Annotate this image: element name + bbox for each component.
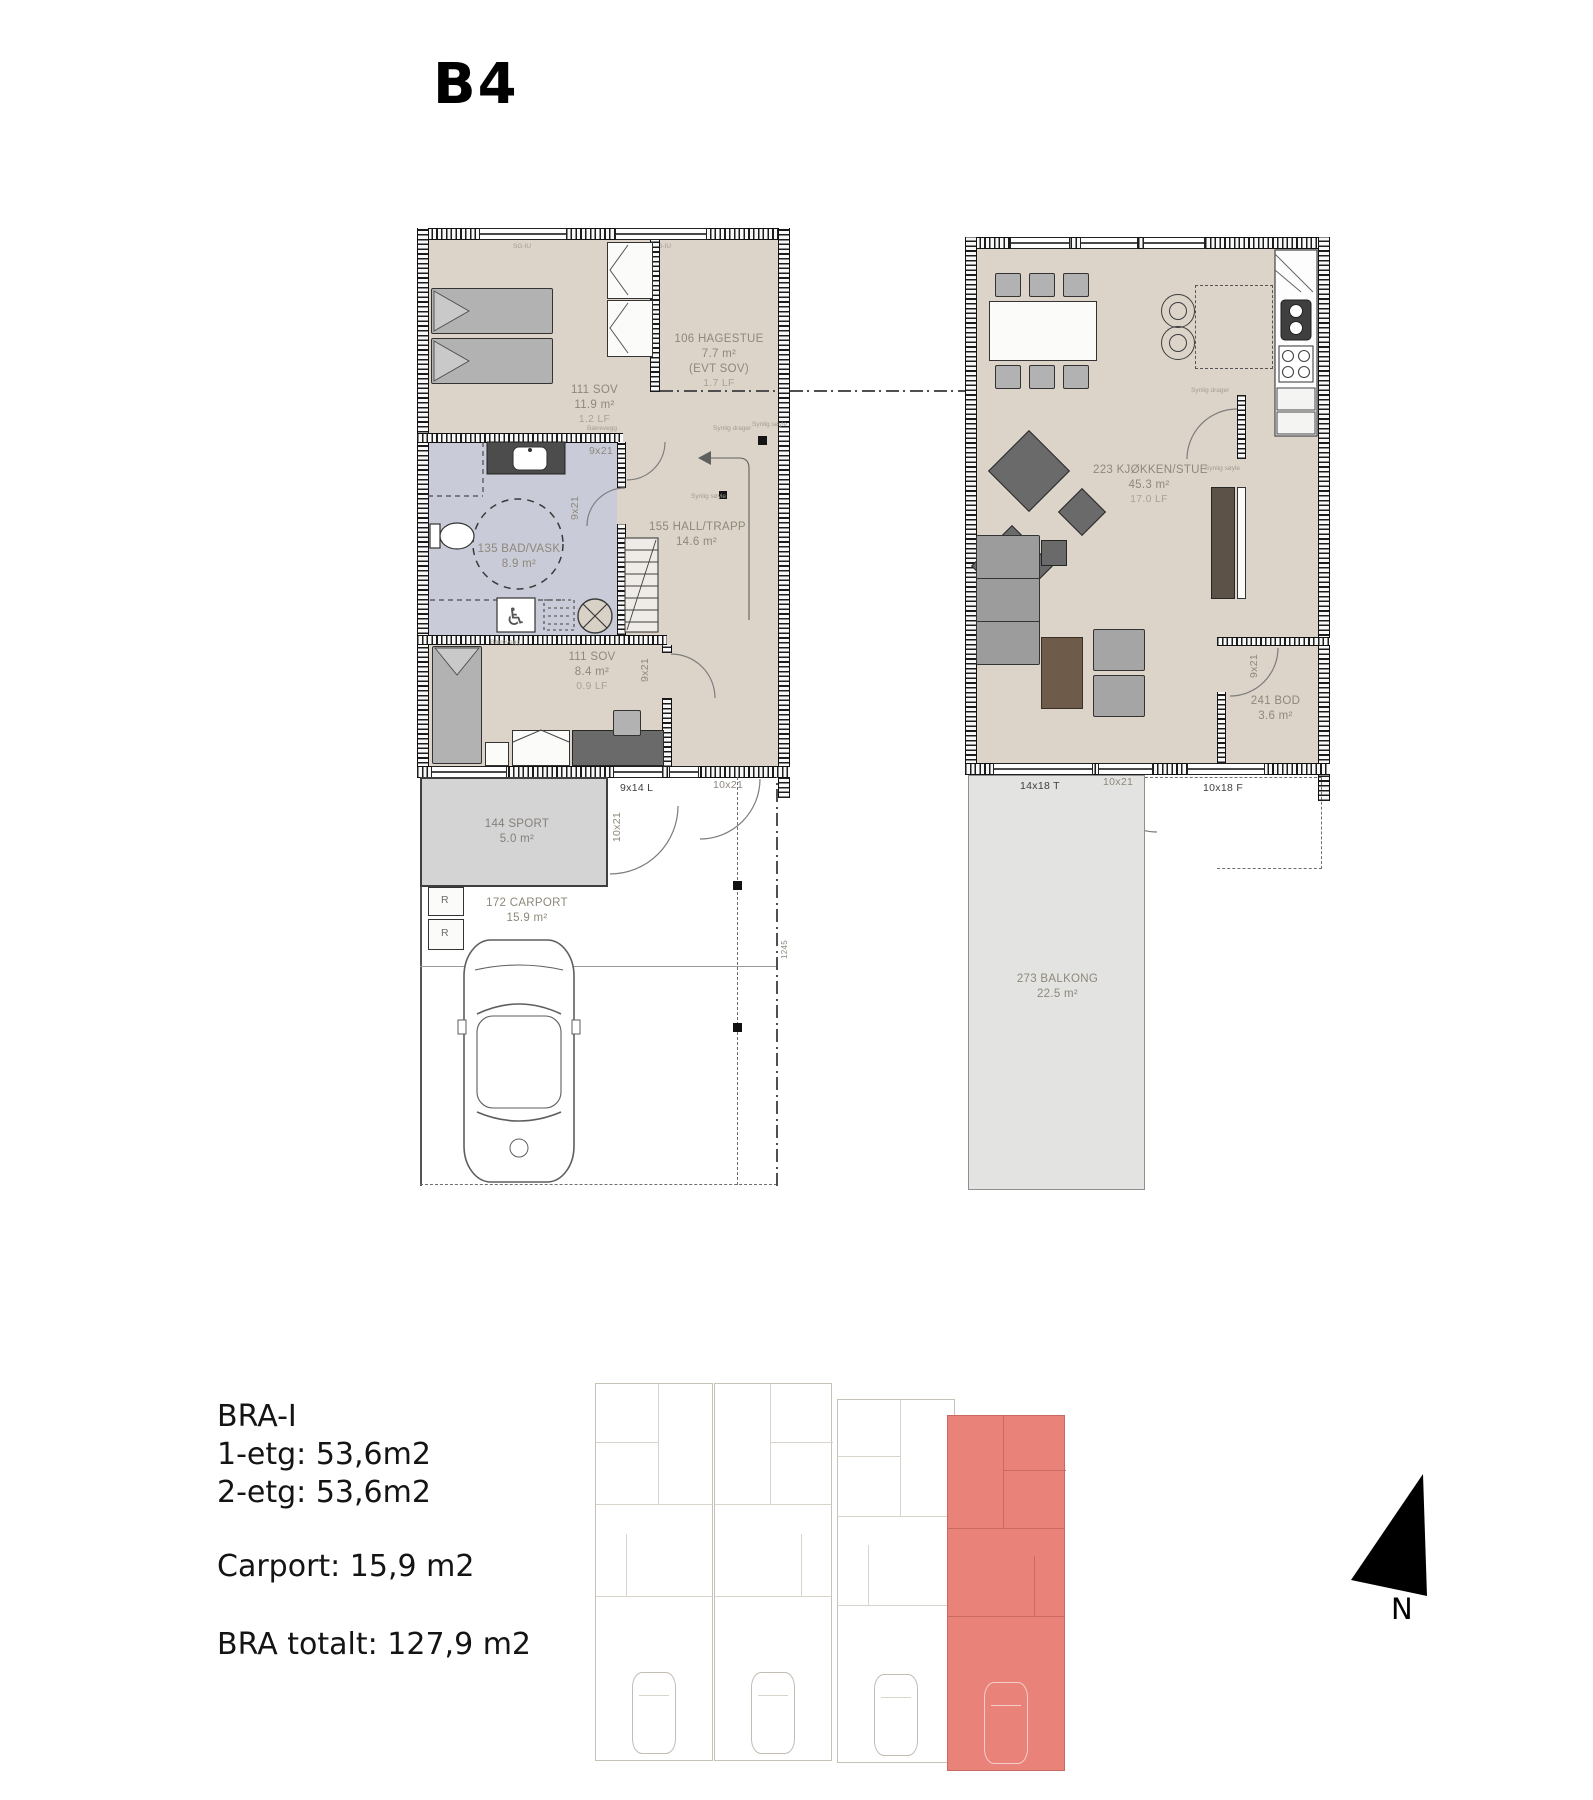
room-name: 111 SOV bbox=[552, 383, 637, 398]
door-label: 10x21 bbox=[1103, 776, 1133, 788]
summary-etg2: 2-etg: 53,6m2 bbox=[217, 1474, 531, 1512]
shower-drain-icon bbox=[578, 599, 612, 633]
stairs bbox=[625, 538, 658, 632]
site-unit bbox=[714, 1383, 832, 1761]
svg-text:♿: ♿ bbox=[505, 603, 527, 631]
wardrobe-chevrons bbox=[610, 245, 628, 353]
room-name: 241 BOD bbox=[1233, 694, 1318, 709]
wall-note: Synlig søyle bbox=[691, 493, 726, 500]
car-top-view bbox=[458, 940, 580, 1182]
door-label: 10x21 bbox=[611, 812, 623, 842]
window-label: 9x14 L bbox=[620, 782, 653, 794]
floorplan-sheet: B4 SG-IU SG-IU bbox=[0, 0, 1593, 1800]
room-area: 11.9 m² bbox=[552, 398, 637, 413]
chair-back-line bbox=[513, 730, 569, 742]
room-label-bad: 135 BAD/VASK 8.9 m² bbox=[475, 542, 563, 572]
site-car bbox=[984, 1682, 1028, 1764]
room-name: 144 SPORT bbox=[472, 817, 562, 832]
room-area: 14.6 m² bbox=[649, 535, 744, 550]
room-alt: (EVT SOV) bbox=[665, 362, 773, 377]
room-label-hall: 155 HALL/TRAPP 14.6 m² bbox=[649, 520, 744, 550]
room-name: 135 BAD/VASK bbox=[475, 542, 563, 557]
room-label-sov1: 111 SOV 11.9 m² 1.2 LF bbox=[552, 383, 637, 427]
wall-note: Bærevegg bbox=[490, 639, 520, 646]
wheelchair-icon: ♿ bbox=[497, 598, 535, 632]
room-area: 8.4 m² bbox=[547, 665, 637, 680]
wall-note: Bærevegg bbox=[587, 425, 617, 432]
room-label-sport: 144 SPORT 5.0 m² bbox=[472, 817, 562, 847]
room-name: 106 HAGESTUE bbox=[665, 332, 773, 347]
window-label: 10x18 F bbox=[1203, 782, 1243, 794]
site-unit-highlighted bbox=[947, 1415, 1065, 1771]
room-area: 5.0 m² bbox=[472, 832, 562, 847]
room-label-sov2: 111 SOV 8.4 m² 0.9 LF bbox=[547, 650, 637, 694]
room-name: 111 SOV bbox=[547, 650, 637, 665]
wall-note: Synlig søyle bbox=[1205, 465, 1240, 472]
site-unit bbox=[595, 1383, 713, 1761]
room-label-balkong: 273 BALKONG 22.5 m² bbox=[1010, 972, 1105, 1002]
room-label-carport: 172 CARPORT 15.9 m² bbox=[482, 896, 572, 926]
room-name: 223 KJØKKEN/STUE bbox=[1093, 463, 1205, 478]
north-arrow: N bbox=[1347, 1470, 1437, 1635]
summary-etg1: 1-etg: 53,6m2 bbox=[217, 1436, 531, 1474]
roof-outline bbox=[1145, 777, 1322, 778]
summary-carport: Carport: 15,9 m2 bbox=[217, 1548, 531, 1586]
room-area: 45.3 m² bbox=[1093, 478, 1205, 493]
door-label: 9x21 bbox=[639, 658, 651, 682]
vanity-sink bbox=[487, 442, 565, 474]
room-area: 22.5 m² bbox=[1010, 987, 1105, 1002]
room-name: 273 BALKONG bbox=[1010, 972, 1105, 987]
roof-outline bbox=[1321, 777, 1322, 869]
section-line bbox=[790, 390, 965, 392]
room-area: 15.9 m² bbox=[482, 911, 572, 926]
door-label: 10x21 bbox=[713, 779, 743, 791]
room-name: 172 CARPORT bbox=[482, 896, 572, 911]
floor1-plan: SG-IU SG-IU R bbox=[417, 228, 790, 1190]
summary-block: BRA-I 1-etg: 53,6m2 2-etg: 53,6m2 Carpor… bbox=[217, 1398, 531, 1664]
toilet-icon bbox=[430, 523, 474, 549]
bed-pillows bbox=[434, 291, 479, 675]
room-lf: 0.9 LF bbox=[547, 680, 637, 694]
roof-outline bbox=[1217, 868, 1322, 869]
room-area: 8.9 m² bbox=[475, 557, 563, 572]
door-label: 9x21 bbox=[1248, 654, 1260, 678]
door-label: 9x21 bbox=[569, 496, 581, 520]
room-area: 3.6 m² bbox=[1233, 709, 1318, 724]
room-lf: 1.7 LF bbox=[665, 377, 773, 391]
summary-heading: BRA-I bbox=[217, 1398, 531, 1436]
wall-note: Synlig drager bbox=[1191, 387, 1229, 394]
site-car bbox=[632, 1672, 676, 1754]
north-label: N bbox=[1391, 1592, 1413, 1626]
room-area: 7.7 m² bbox=[665, 347, 773, 362]
room-label-stue: 223 KJØKKEN/STUE 45.3 m² 17.0 LF bbox=[1093, 463, 1205, 507]
door-label: 9x21 bbox=[589, 445, 613, 457]
site-plan bbox=[595, 1375, 1315, 1775]
north-arrow-icon bbox=[1347, 1470, 1431, 1602]
washer-icon bbox=[544, 600, 574, 630]
site-car bbox=[874, 1674, 918, 1756]
room-label-bod: 241 BOD 3.6 m² bbox=[1233, 694, 1318, 724]
site-unit bbox=[837, 1399, 955, 1763]
room-lf: 17.0 LF bbox=[1093, 493, 1205, 507]
room-name: 155 HALL/TRAPP bbox=[649, 520, 744, 535]
dimension-label: 1245 bbox=[780, 940, 789, 959]
wall-note: Synlig søyle bbox=[752, 421, 787, 428]
room-label-hagestue: 106 HAGESTUE 7.7 m² (EVT SOV) 1.7 LF bbox=[665, 332, 773, 390]
page-title: B4 bbox=[433, 52, 519, 117]
summary-total: BRA totalt: 127,9 m2 bbox=[217, 1626, 531, 1664]
wall-note: Synlig drager bbox=[713, 425, 751, 432]
floor2-plan: 223 KJØKKEN/STUE 45.3 m² 17.0 LF 241 BOD… bbox=[965, 237, 1330, 1190]
site-car bbox=[751, 1672, 795, 1754]
window-label: 14x18 T bbox=[1020, 780, 1060, 792]
